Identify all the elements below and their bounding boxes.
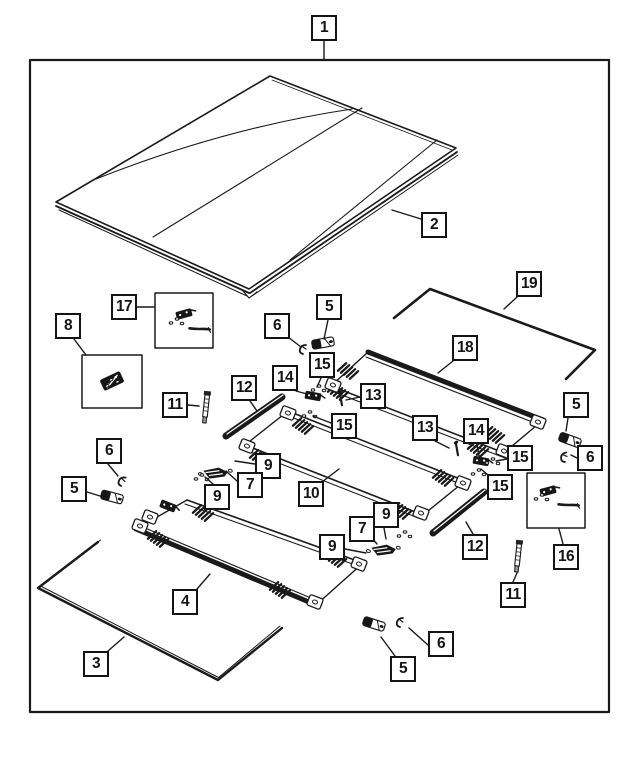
rail-strip-right	[433, 490, 485, 533]
callout-15-mid-left: 15	[331, 413, 357, 439]
callout-18: 18	[452, 335, 478, 361]
rail-strip-left	[226, 395, 283, 436]
cover-panel	[56, 76, 458, 298]
bracket-left	[304, 391, 325, 402]
callout-7-right: 7	[349, 516, 375, 542]
callout-12-left: 12	[231, 375, 257, 401]
callout-9-left-bottom: 9	[204, 484, 230, 510]
callout-5-top: 5	[316, 294, 342, 320]
callout-9-right-bottom: 9	[319, 534, 345, 560]
callout-9-right-top: 9	[373, 502, 399, 528]
seal-front	[38, 540, 282, 680]
callout-6-upper-left: 6	[264, 313, 290, 339]
bolt-left	[201, 391, 211, 424]
callout-15-top: 15	[309, 352, 335, 378]
callout-8: 8	[55, 313, 81, 339]
callout-5-left: 5	[61, 476, 87, 502]
clip-right	[560, 453, 568, 463]
callout-10: 10	[298, 481, 324, 507]
latch-left	[100, 490, 124, 504]
callout-12-right: 12	[462, 534, 488, 560]
callout-19: 19	[516, 271, 542, 297]
callout-16: 16	[553, 544, 579, 570]
frame-section-rear	[324, 352, 546, 459]
callout-17: 17	[111, 294, 137, 320]
kit-box-16	[527, 473, 585, 528]
callout-3: 3	[83, 651, 109, 677]
seal-rear	[394, 289, 595, 379]
callout-2: 2	[421, 212, 447, 238]
callout-1: 1	[311, 15, 337, 41]
callout-15-right-lower: 15	[487, 474, 513, 500]
callout-6-right: 6	[577, 445, 603, 471]
latch-bottom	[362, 616, 386, 631]
callout-11-left: 11	[162, 392, 188, 418]
clip-left	[118, 477, 126, 487]
screws-right-lower	[471, 469, 486, 476]
callout-4: 4	[172, 589, 198, 615]
parts-diagram-page: 1 2 17 8 6 5 15 14 13 15 12 11 18 19 13 …	[0, 0, 640, 777]
callout-6-left: 6	[96, 438, 122, 464]
callout-14-right: 14	[463, 418, 489, 444]
callout-7-left: 7	[237, 472, 263, 498]
latch-top	[311, 337, 334, 350]
bolt-right	[513, 540, 523, 573]
bracket-right	[472, 456, 493, 467]
callout-5-bottom: 5	[390, 656, 416, 682]
screws-top	[311, 385, 326, 392]
kit-box-8	[82, 355, 142, 408]
callout-15-right-upper: 15	[507, 445, 533, 471]
callout-13-right: 13	[412, 415, 438, 441]
callout-14-left: 14	[272, 365, 298, 391]
callout-5-right: 5	[563, 392, 589, 418]
callout-13-left: 13	[360, 383, 386, 409]
kit-box-17	[155, 293, 213, 348]
callout-6-bottom: 6	[428, 631, 454, 657]
callout-11-right: 11	[500, 582, 526, 608]
clip-bottom	[397, 618, 403, 627]
hinge-screws-right	[397, 531, 412, 538]
